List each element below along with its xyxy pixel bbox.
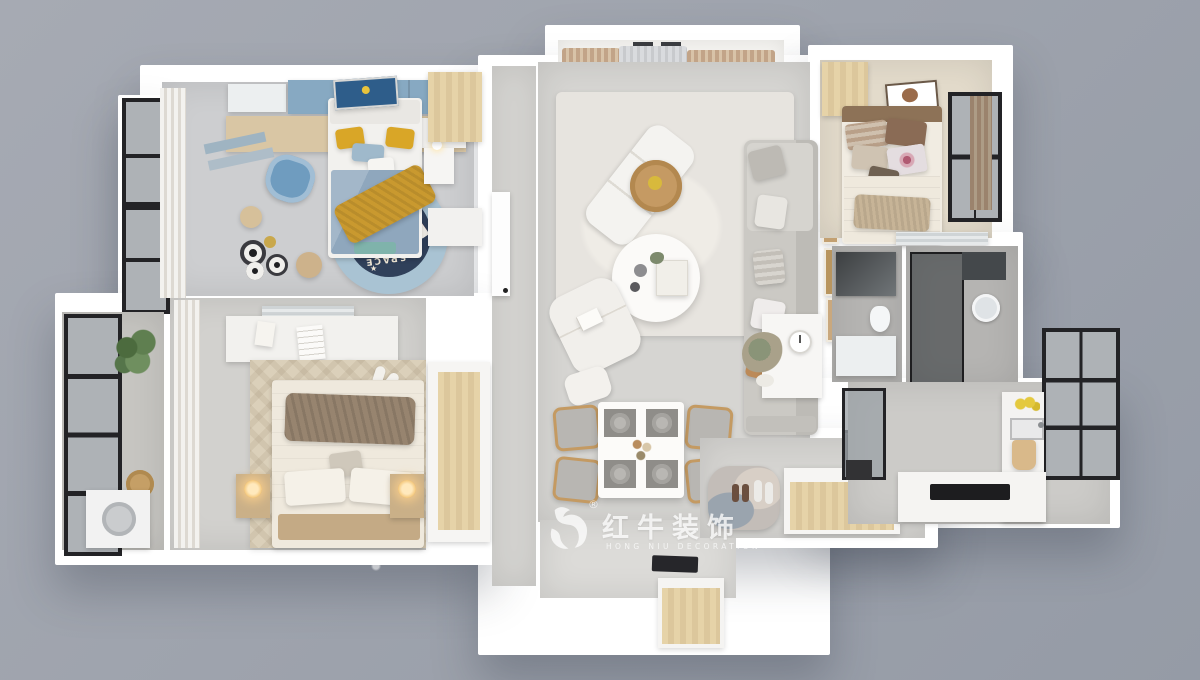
kitchen-window xyxy=(1042,328,1120,480)
vanity-counter xyxy=(836,336,896,376)
art-dots xyxy=(362,86,371,95)
kids-bedroom: SPACE ★ ★ ★ xyxy=(118,65,540,315)
shoe-cabinet-wood-front xyxy=(662,588,720,644)
plant-vase xyxy=(756,374,774,387)
wardrobe-wood-panel xyxy=(438,372,480,530)
cymbal xyxy=(264,236,276,248)
washing-machine xyxy=(86,490,150,548)
sofa-pillow-white xyxy=(754,194,788,230)
bedroom2-throw xyxy=(853,194,931,232)
small-watermark-mark xyxy=(370,560,382,572)
watermark-en-text: HONG NIU DECORATION xyxy=(606,542,761,551)
cutting-board xyxy=(1012,440,1036,470)
art-blob xyxy=(901,88,918,103)
kids-curtain xyxy=(160,88,186,298)
floorplan-render: SPACE ★ ★ ★ xyxy=(0,0,1200,680)
drum-tom xyxy=(246,262,264,280)
drum-small xyxy=(266,254,288,276)
kids-room-door xyxy=(492,192,510,296)
desk-magazine xyxy=(296,325,325,362)
utility-balcony xyxy=(55,293,175,565)
star-icon: ★ xyxy=(370,264,377,273)
kitchen-dark-box xyxy=(846,460,872,480)
entry-shoe-cabinet-low xyxy=(658,578,724,648)
kids-nightstand xyxy=(424,148,454,184)
kids-wall-art xyxy=(333,76,399,110)
kids-wardrobe xyxy=(428,72,482,142)
toilet xyxy=(870,306,890,332)
stool-pouf-2 xyxy=(296,252,322,278)
corridor-floor xyxy=(492,66,536,586)
registered-mark: ® xyxy=(588,498,599,511)
master-bed xyxy=(272,380,424,548)
stool-pouf-1 xyxy=(240,206,262,228)
bedroom2-curtain xyxy=(970,96,992,210)
lamp-left xyxy=(244,480,262,498)
bedroom2-bed xyxy=(842,106,942,244)
dried-plant xyxy=(738,330,794,392)
bull-logo-icon xyxy=(544,502,590,552)
lemons xyxy=(1014,396,1040,412)
rattan-side-table xyxy=(630,160,682,212)
brand-watermark: ® 红牛装饰 HONG NIU DECORATION xyxy=(544,498,774,560)
desk-notes xyxy=(254,321,275,347)
shower-dark-vanity xyxy=(962,252,1006,280)
balcony-plant xyxy=(108,326,162,380)
teal-blanket xyxy=(354,242,396,254)
plant-foliage xyxy=(742,332,786,376)
round-mirror xyxy=(972,294,1000,322)
faucet xyxy=(1038,422,1044,428)
kids-wardrobe-lower xyxy=(428,208,482,246)
table-decor-tray xyxy=(656,260,688,296)
master-pillow-left xyxy=(284,468,346,506)
table-decor-cup xyxy=(630,282,640,292)
master-wardrobe xyxy=(428,362,490,542)
washer-drum xyxy=(102,502,136,536)
kids-upper-cabinet-white xyxy=(228,84,286,112)
watermark-cn-text: 红牛装饰 xyxy=(602,506,742,545)
fruit-bowl xyxy=(648,176,662,190)
master-curtain xyxy=(174,300,200,548)
door-handle xyxy=(503,288,508,293)
vanity-mirror xyxy=(836,252,896,296)
shower-glass-partition xyxy=(910,252,964,386)
bathrooms xyxy=(808,232,1023,397)
clock-hand xyxy=(799,335,801,343)
lamp-right xyxy=(398,480,416,498)
master-brown-throw xyxy=(284,393,416,446)
secondary-bedroom xyxy=(808,45,1013,250)
pillow-yellow-2 xyxy=(385,126,415,149)
sofa-pillow-striped xyxy=(752,249,785,286)
kitchen xyxy=(808,378,1120,528)
table-decor-vase xyxy=(634,264,647,277)
black-appliance xyxy=(930,484,1010,500)
